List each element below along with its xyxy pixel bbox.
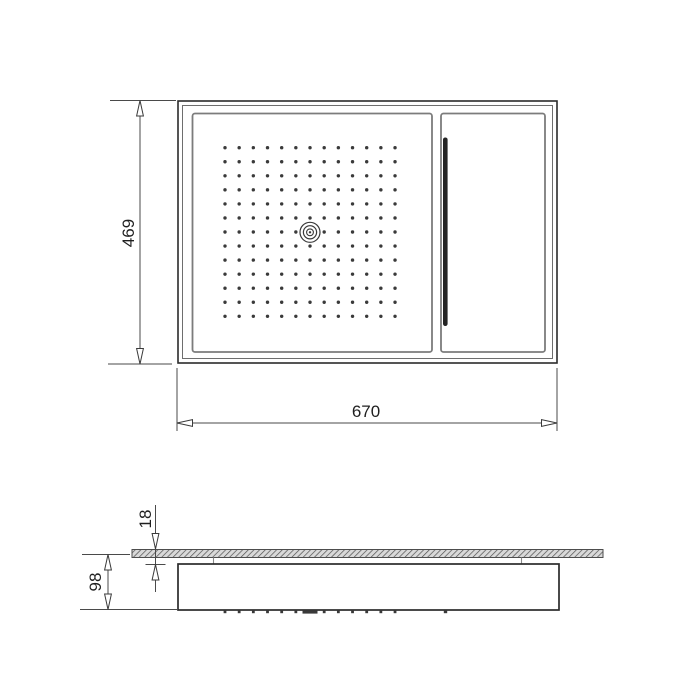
nozzle-dot bbox=[365, 315, 368, 318]
nozzle-dot bbox=[237, 216, 240, 219]
nozzle-dot bbox=[266, 315, 269, 318]
nozzle-dot bbox=[393, 287, 396, 290]
nozzle-dot bbox=[294, 146, 297, 149]
nozzle-dot bbox=[365, 230, 368, 233]
dim-overall-height-value: 469 bbox=[119, 219, 138, 247]
nozzle-dot bbox=[237, 287, 240, 290]
nozzle-dot bbox=[266, 244, 269, 247]
nozzle-dot bbox=[237, 244, 240, 247]
drawing-canvas: 469 670 18 98 bbox=[0, 0, 700, 700]
nozzle-dot bbox=[351, 272, 354, 275]
nozzle-dot bbox=[237, 301, 240, 304]
top-view bbox=[178, 101, 557, 363]
nozzle-dot bbox=[351, 230, 354, 233]
nozzle-dot bbox=[237, 174, 240, 177]
arrowhead-down bbox=[105, 594, 112, 610]
dim-overall-width-value: 670 bbox=[352, 402, 380, 421]
nozzle-dot bbox=[393, 160, 396, 163]
nozzle-dot bbox=[252, 272, 255, 275]
nozzle-dot bbox=[223, 202, 226, 205]
nozzle-dot bbox=[322, 272, 325, 275]
nozzle-tick bbox=[323, 610, 326, 613]
nozzle-dot bbox=[393, 272, 396, 275]
nozzle-dot bbox=[280, 202, 283, 205]
nozzle-dot bbox=[252, 230, 255, 233]
nozzle-tick bbox=[252, 610, 255, 613]
nozzle-dot bbox=[322, 244, 325, 247]
nozzle-dot bbox=[393, 216, 396, 219]
nozzle-dot bbox=[351, 301, 354, 304]
nozzle-dot bbox=[308, 188, 311, 191]
shower-body bbox=[178, 564, 559, 610]
nozzle-dot bbox=[308, 258, 311, 261]
nozzle-dot bbox=[337, 272, 340, 275]
nozzle-dot bbox=[322, 301, 325, 304]
nozzle-dot bbox=[308, 301, 311, 304]
nozzle-dot bbox=[294, 315, 297, 318]
nozzle-dot bbox=[379, 287, 382, 290]
nozzle-dot bbox=[252, 301, 255, 304]
nozzle-dot bbox=[365, 244, 368, 247]
nozzle-dot bbox=[337, 287, 340, 290]
nozzle-dot bbox=[223, 301, 226, 304]
nozzle-dot bbox=[337, 315, 340, 318]
nozzle-dot bbox=[266, 230, 269, 233]
nozzle-dot bbox=[379, 174, 382, 177]
side-view bbox=[132, 550, 603, 614]
nozzle-tick bbox=[351, 610, 354, 613]
nozzle-dot bbox=[280, 160, 283, 163]
nozzle-dot bbox=[308, 315, 311, 318]
nozzle-dot bbox=[280, 244, 283, 247]
arrowhead-up bbox=[137, 101, 144, 117]
nozzle-dot bbox=[365, 146, 368, 149]
nozzle-dot bbox=[294, 287, 297, 290]
nozzle-dot bbox=[322, 258, 325, 261]
nozzle-dot bbox=[322, 188, 325, 191]
nozzle-tick bbox=[224, 610, 227, 613]
ceiling-plate bbox=[132, 550, 603, 558]
nozzle-dot bbox=[337, 301, 340, 304]
nozzle-dot bbox=[266, 272, 269, 275]
nozzle-dot bbox=[280, 272, 283, 275]
nozzle-dot bbox=[237, 146, 240, 149]
nozzle-dot bbox=[266, 301, 269, 304]
nozzle-dot bbox=[252, 258, 255, 261]
nozzle-dot bbox=[365, 301, 368, 304]
arrowhead-left bbox=[177, 420, 193, 427]
nozzle-dot bbox=[379, 230, 382, 233]
nozzle-dot bbox=[351, 160, 354, 163]
nozzle-dot bbox=[337, 146, 340, 149]
nozzle-dot bbox=[294, 258, 297, 261]
nozzle-dot bbox=[393, 174, 396, 177]
nozzle-dot bbox=[379, 244, 382, 247]
nozzle-dot bbox=[252, 287, 255, 290]
nozzle-dot bbox=[365, 272, 368, 275]
nozzle-dot bbox=[365, 202, 368, 205]
dim-overall-height: 469 bbox=[108, 101, 176, 365]
nozzle-dot bbox=[294, 272, 297, 275]
nozzle-dot bbox=[322, 230, 325, 233]
nozzle-dot bbox=[223, 287, 226, 290]
nozzle-dot bbox=[337, 174, 340, 177]
arrowhead-down bbox=[152, 534, 159, 550]
nozzle-dot bbox=[351, 188, 354, 191]
arrowhead-right bbox=[542, 420, 558, 427]
nozzle-dot bbox=[379, 202, 382, 205]
dim-overall-width: 670 bbox=[177, 368, 557, 431]
dim-ceiling-recess-value: 18 bbox=[136, 510, 155, 529]
nozzle-dot bbox=[266, 174, 269, 177]
nozzle-dot bbox=[280, 174, 283, 177]
waterfall-slot bbox=[443, 138, 448, 327]
nozzle-dot bbox=[266, 160, 269, 163]
nozzle-dot bbox=[294, 244, 297, 247]
nozzle-dot bbox=[266, 188, 269, 191]
nozzle-dot bbox=[308, 174, 311, 177]
nozzle-dot bbox=[351, 315, 354, 318]
nozzle-dot bbox=[280, 188, 283, 191]
nozzle-dot bbox=[322, 202, 325, 205]
nozzle-dot bbox=[379, 146, 382, 149]
waterfall-panel bbox=[441, 114, 545, 353]
nozzle-dot bbox=[308, 146, 311, 149]
nozzle-dot bbox=[252, 188, 255, 191]
nozzle-dot bbox=[393, 258, 396, 261]
nozzle-dot bbox=[379, 272, 382, 275]
nozzle-dot bbox=[379, 188, 382, 191]
nozzle-dot bbox=[266, 258, 269, 261]
nozzle-dot bbox=[393, 188, 396, 191]
nozzle-tick bbox=[280, 610, 283, 613]
nozzle-dot bbox=[308, 244, 311, 247]
nozzle-dot bbox=[365, 258, 368, 261]
nozzle-dot bbox=[237, 258, 240, 261]
nozzle-dot bbox=[351, 287, 354, 290]
nozzle-dot bbox=[337, 216, 340, 219]
nozzle-dot bbox=[351, 216, 354, 219]
nozzle-dot bbox=[322, 174, 325, 177]
nozzle-dot bbox=[351, 202, 354, 205]
nozzle-dot bbox=[351, 146, 354, 149]
nozzle-tick bbox=[379, 610, 382, 613]
arrowhead-up bbox=[152, 565, 159, 581]
nozzle-dot bbox=[322, 216, 325, 219]
dim-body-depth-value: 98 bbox=[86, 573, 105, 592]
center-nozzle-tick bbox=[303, 610, 318, 613]
nozzle-dot bbox=[393, 315, 396, 318]
nozzle-dot bbox=[223, 244, 226, 247]
nozzle-dot bbox=[252, 146, 255, 149]
nozzle-dot bbox=[237, 160, 240, 163]
nozzle-dot bbox=[351, 174, 354, 177]
nozzle-tick bbox=[294, 610, 297, 613]
nozzle-dot bbox=[252, 202, 255, 205]
nozzle-dot bbox=[294, 202, 297, 205]
nozzle-dot bbox=[266, 146, 269, 149]
nozzle-dot bbox=[223, 216, 226, 219]
technical-drawing: 469 670 18 98 bbox=[0, 0, 700, 700]
nozzle-dot bbox=[393, 301, 396, 304]
nozzle-dot bbox=[393, 146, 396, 149]
nozzle-dot bbox=[308, 272, 311, 275]
nozzle-dot bbox=[237, 202, 240, 205]
arrowhead-up bbox=[105, 555, 112, 571]
nozzle-dot bbox=[280, 258, 283, 261]
nozzle-dot bbox=[223, 315, 226, 318]
nozzle-dot bbox=[294, 230, 297, 233]
nozzle-dot bbox=[365, 188, 368, 191]
arrowhead-down bbox=[137, 349, 144, 365]
nozzle-dot bbox=[393, 202, 396, 205]
nozzle-dot bbox=[223, 160, 226, 163]
waterfall-tick bbox=[444, 610, 447, 613]
nozzle-dot bbox=[280, 146, 283, 149]
nozzle-dot bbox=[322, 160, 325, 163]
nozzle-dot bbox=[308, 160, 311, 163]
nozzle-dot bbox=[365, 287, 368, 290]
nozzle-tick bbox=[337, 610, 340, 613]
center-nozzle bbox=[300, 222, 320, 242]
nozzle-dot bbox=[337, 188, 340, 191]
nozzle-tick bbox=[266, 610, 269, 613]
nozzle-dot bbox=[252, 160, 255, 163]
nozzle-dot bbox=[379, 216, 382, 219]
nozzle-dot bbox=[266, 216, 269, 219]
nozzle-dot bbox=[223, 146, 226, 149]
nozzle-dot bbox=[308, 216, 311, 219]
nozzle-dot bbox=[365, 216, 368, 219]
nozzle-dot bbox=[322, 146, 325, 149]
nozzle-dot bbox=[351, 244, 354, 247]
dim-ceiling-recess: 18 bbox=[136, 505, 166, 592]
nozzle-dot bbox=[393, 244, 396, 247]
nozzle-dot bbox=[266, 287, 269, 290]
nozzle-dot bbox=[294, 301, 297, 304]
nozzle-dot bbox=[337, 230, 340, 233]
nozzle-dot bbox=[337, 258, 340, 261]
nozzle-dot bbox=[223, 230, 226, 233]
nozzle-dot bbox=[308, 202, 311, 205]
nozzle-dot bbox=[322, 315, 325, 318]
center-nozzle-dot bbox=[309, 231, 311, 233]
nozzle-dot bbox=[280, 230, 283, 233]
nozzle-dot bbox=[337, 244, 340, 247]
nozzle-dot bbox=[393, 230, 396, 233]
nozzle-dot bbox=[337, 202, 340, 205]
nozzle-dot bbox=[223, 188, 226, 191]
nozzle-dot bbox=[379, 160, 382, 163]
nozzle-tick bbox=[365, 610, 368, 613]
nozzle-dot bbox=[252, 244, 255, 247]
nozzle-dot bbox=[237, 188, 240, 191]
nozzle-dot bbox=[280, 315, 283, 318]
nozzle-dot bbox=[379, 258, 382, 261]
nozzle-dot bbox=[308, 287, 311, 290]
nozzle-dot bbox=[337, 160, 340, 163]
nozzle-tick bbox=[394, 610, 397, 613]
nozzle-dot bbox=[223, 258, 226, 261]
nozzle-dot bbox=[322, 287, 325, 290]
nozzle-dot bbox=[379, 301, 382, 304]
nozzle-dot bbox=[294, 160, 297, 163]
nozzle-dot bbox=[294, 174, 297, 177]
nozzle-dot bbox=[351, 258, 354, 261]
nozzle-dot bbox=[280, 216, 283, 219]
nozzle-dot bbox=[237, 315, 240, 318]
nozzle-dot bbox=[252, 216, 255, 219]
nozzle-dot bbox=[237, 230, 240, 233]
nozzle-dot bbox=[365, 174, 368, 177]
nozzle-dot bbox=[280, 301, 283, 304]
nozzle-dot bbox=[280, 287, 283, 290]
nozzle-dot bbox=[223, 174, 226, 177]
nozzle-dot bbox=[252, 174, 255, 177]
nozzle-dot bbox=[365, 160, 368, 163]
nozzle-dot bbox=[223, 272, 226, 275]
nozzle-tick bbox=[238, 610, 241, 613]
nozzle-dot bbox=[237, 272, 240, 275]
nozzle-dot bbox=[294, 216, 297, 219]
dim-body-depth: 98 bbox=[80, 555, 177, 610]
nozzle-dot bbox=[252, 315, 255, 318]
nozzle-dot bbox=[379, 315, 382, 318]
nozzle-dot bbox=[294, 188, 297, 191]
nozzle-dot bbox=[266, 202, 269, 205]
